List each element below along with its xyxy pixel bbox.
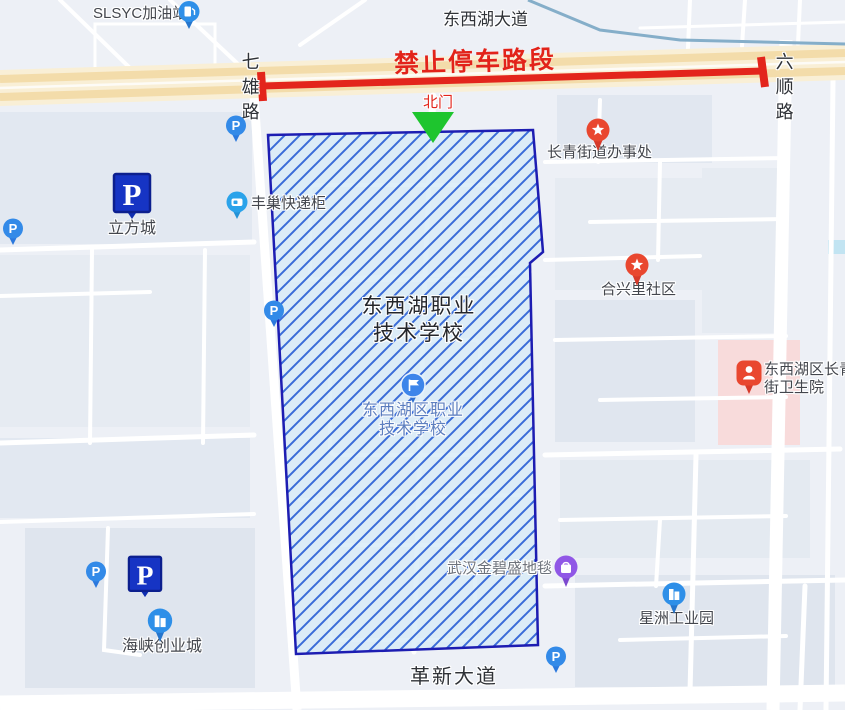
parking-letter: P	[232, 118, 241, 133]
school-poi-line2[interactable]: 技术学校	[379, 420, 447, 439]
map-canvas[interactable]: 东西湖大道 禁止停车路段 北门 七雄路 六顺路 革新大道 东西湖职业 技术学校 …	[0, 0, 845, 710]
parking-letter: P	[137, 561, 154, 592]
parking-garage-icon[interactable]: P	[112, 172, 152, 225]
parking-garage-icon[interactable]: P	[127, 555, 163, 603]
carpet-shop-pin[interactable]	[553, 555, 579, 593]
community-pin[interactable]	[624, 253, 650, 292]
building-icon	[148, 609, 172, 633]
parking-circle-pin[interactable]: P	[85, 561, 107, 594]
street-office-pin[interactable]	[585, 118, 611, 157]
poi-label-carpet[interactable]: 武汉金碧盛地毯	[447, 560, 552, 578]
no-parking-label: 禁止停车路段	[394, 46, 557, 81]
parking-letter: P	[123, 177, 142, 212]
school-title-line1: 东西湖职业	[362, 294, 477, 319]
parking-letter: P	[92, 564, 101, 579]
parking-circle-pin[interactable]: P	[545, 646, 567, 679]
road-label-liushun: 六顺路	[772, 52, 794, 127]
nurse-icon	[737, 361, 762, 386]
school-title-line2: 技术学校	[373, 321, 465, 346]
school-poi-pin[interactable]	[399, 372, 427, 409]
poi-label-locker[interactable]: 丰巢快递柜	[251, 195, 326, 213]
gas-station-pin[interactable]	[177, 0, 201, 35]
parking-circle-pin[interactable]: P	[2, 218, 24, 251]
road-label-dongxihu: 东西湖大道	[443, 10, 528, 30]
parking-letter: P	[270, 303, 279, 318]
hospital-pin[interactable]	[735, 359, 763, 400]
parking-circle-pin[interactable]: P	[263, 300, 285, 333]
poi-label-hospital-line1[interactable]: 东西湖区长青	[764, 361, 845, 379]
business-park-pin[interactable]	[146, 608, 174, 648]
building-icon	[663, 583, 686, 606]
poi-label-gas-station[interactable]: SLSYC加油站	[93, 5, 187, 23]
gexin-avenue	[0, 693, 845, 704]
parking-letter: P	[552, 649, 561, 664]
industrial-park-pin[interactable]	[661, 582, 687, 620]
poi-label-hospital-line2[interactable]: 街卫生院	[764, 379, 824, 397]
locker-pin[interactable]	[225, 191, 249, 225]
parking-letter: P	[9, 221, 18, 236]
road-label-gexin: 革新大道	[410, 665, 498, 689]
north-gate-label: 北门	[423, 94, 453, 112]
parking-circle-pin[interactable]: P	[225, 115, 247, 148]
